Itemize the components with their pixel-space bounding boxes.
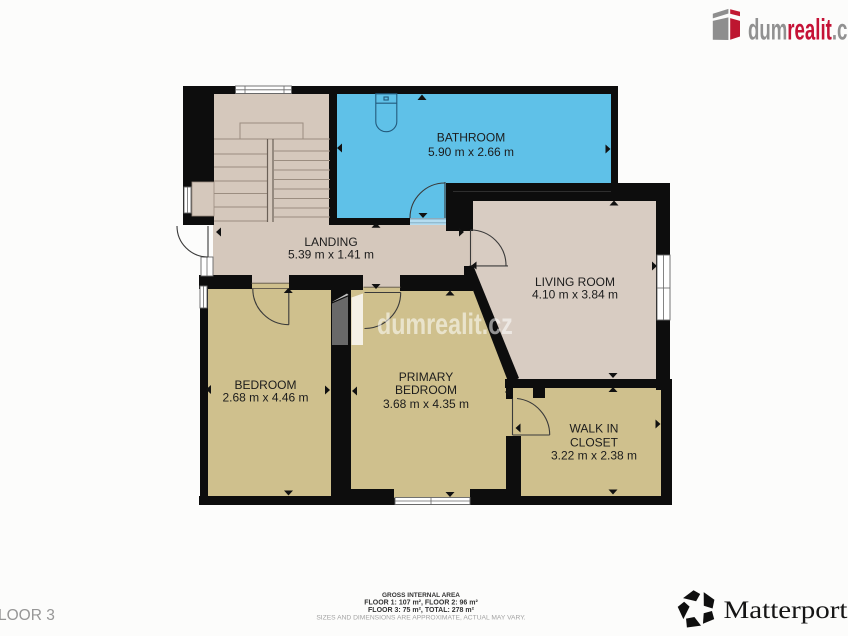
- svg-text:CLOSET: CLOSET: [570, 436, 619, 450]
- svg-text:FLOOR 1: 107 m², FLOOR 2: 96 m: FLOOR 1: 107 m², FLOOR 2: 96 m²: [364, 600, 478, 607]
- svg-text:3.68 m x 4.35 m: 3.68 m x 4.35 m: [383, 397, 469, 411]
- svg-text:Matterport: Matterport: [724, 596, 848, 624]
- svg-text:dumrealit.cz: dumrealit.cz: [748, 15, 848, 47]
- svg-text:BEDROOM: BEDROOM: [395, 383, 457, 397]
- svg-text:4.10 m x 3.84 m: 4.10 m x 3.84 m: [532, 288, 618, 302]
- svg-text:PRIMARY: PRIMARY: [399, 370, 453, 384]
- svg-text:WALK IN: WALK IN: [570, 422, 619, 436]
- svg-text:dumrealit.cz: dumrealit.cz: [377, 307, 513, 341]
- svg-text:2.68 m x 4.46 m: 2.68 m x 4.46 m: [222, 391, 308, 405]
- svg-text:FLOOR 3: FLOOR 3: [0, 607, 55, 624]
- svg-text:BATHROOM: BATHROOM: [437, 131, 505, 145]
- svg-text:5.39 m x 1.41 m: 5.39 m x 1.41 m: [288, 248, 374, 262]
- svg-text:GROSS INTERNAL AREA: GROSS INTERNAL AREA: [382, 592, 460, 599]
- svg-text:5.90 m x 2.66 m: 5.90 m x 2.66 m: [428, 145, 514, 159]
- svg-text:FLOOR 3: 75 m², TOTAL: 278 m²: FLOOR 3: 75 m², TOTAL: 278 m²: [368, 607, 475, 614]
- svg-text:3.22 m x 2.38 m: 3.22 m x 2.38 m: [551, 449, 637, 463]
- svg-text:SIZES AND DIMENSIONS ARE APPRO: SIZES AND DIMENSIONS ARE APPROXIMATE, AC…: [316, 615, 525, 622]
